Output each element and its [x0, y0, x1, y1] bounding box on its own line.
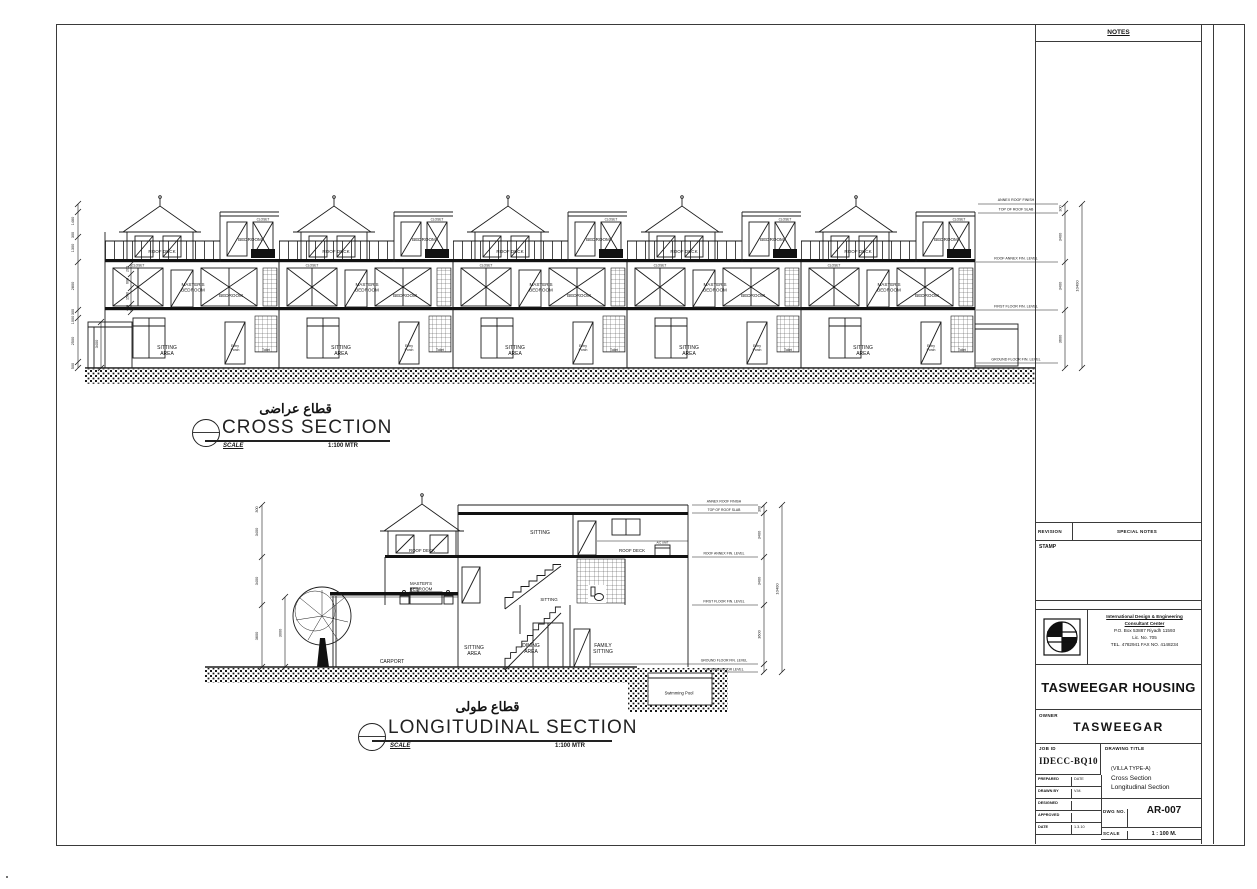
- longitudinal-section-marker-line: [358, 736, 385, 737]
- dim-label: 3600: [255, 632, 259, 640]
- room-label: ROOF DECK: [322, 249, 350, 254]
- approval-label: APPROVED: [1038, 813, 1059, 817]
- room-label: BEDROOM: [355, 288, 379, 293]
- approval-table: PREPARED DATE DRAWN BY V.M. DESIGNED APP…: [1036, 775, 1102, 835]
- dim-label: 450: [126, 305, 130, 311]
- longitudinal-section-title-underline: [372, 740, 612, 742]
- room-label: SITTING: [530, 530, 550, 536]
- room-label: BEDROOM: [586, 237, 610, 242]
- room-label: Porch: [231, 348, 240, 352]
- company-address: P.O. Box 53887 Riyadh 11593: [1088, 628, 1201, 635]
- dim-label: 300: [255, 506, 259, 512]
- cross-section-scale-value: 1:100 MTR: [328, 443, 358, 449]
- longitudinal-section-shell: [205, 494, 758, 712]
- dim-label: 3400: [95, 340, 99, 348]
- room-label: MASTER'S: [181, 282, 204, 287]
- room-label: BEDROOM: [410, 586, 433, 591]
- job-id-value: IDECC-BQ10: [1036, 756, 1101, 766]
- revision-label: REVISION: [1038, 529, 1062, 534]
- spacer-cell: [1036, 601, 1201, 610]
- approval-value: V.M.: [1071, 789, 1102, 799]
- room-label: Toilet: [610, 348, 618, 352]
- room-label: BEDROOM: [219, 293, 243, 298]
- room-label: MASTER'S: [877, 282, 900, 287]
- room-label: CLOSET: [306, 264, 319, 268]
- drawing-title-line1: (VILLA TYPE-A): [1111, 766, 1151, 772]
- revision-cell: REVISION: [1036, 523, 1073, 541]
- notes-header: NOTES: [1036, 24, 1201, 42]
- level-label: ANNEX ROOF FINISH: [707, 500, 742, 504]
- approval-label: DESIGNED: [1038, 801, 1058, 805]
- room-label: Toilet: [436, 348, 444, 352]
- level-label: TOP OF ROOF SLAB: [708, 508, 742, 512]
- dim-label: 300: [758, 506, 762, 512]
- approval-row: PREPARED DATE: [1036, 775, 1101, 787]
- scale-value: 1 : 100 M.: [1127, 831, 1201, 837]
- page-artifact-dot: [6, 876, 8, 878]
- room-label: AREA: [524, 649, 538, 655]
- room-label: ROOF DECK: [148, 249, 176, 254]
- approval-label: DATE: [1038, 825, 1048, 829]
- room-label: BEDROOM: [703, 288, 727, 293]
- dwg-no-label: DWG NO.: [1103, 809, 1128, 828]
- dim-label: 600: [126, 278, 130, 284]
- cross-section-title-underline: [205, 440, 390, 442]
- drawing-title-cell: DRAWING TITLE (VILLA TYPE-A) Cross Secti…: [1101, 744, 1201, 799]
- room-label: AREA: [467, 651, 481, 657]
- dim-label: 3600: [758, 630, 762, 638]
- longitudinal-section-marker-circle: [358, 723, 386, 751]
- longitudinal-section-scale-label: SCALE: [390, 743, 410, 749]
- company-name-line1: International Design & Engineering: [1088, 614, 1201, 621]
- longitudinal-section-drawing: ROOF DECKSITTINGROOF DECKA/C UNITMASTER'…: [250, 480, 810, 720]
- level-label: FIRST FLOOR FIN. LEVEL: [994, 305, 1038, 309]
- dim-label: 2500: [71, 337, 75, 345]
- room-label: BEDROOM: [529, 288, 553, 293]
- dim-label: 1000: [71, 316, 75, 324]
- stamp-label: STAMP: [1039, 544, 1056, 550]
- drawing-title-line3: Longitudinal Section: [1111, 784, 1170, 791]
- dim-label: 200: [126, 266, 130, 272]
- drawing-title-line2: Cross Section: [1111, 775, 1151, 782]
- level-label: ROOF ANNEX FIN. LEVEL: [703, 552, 744, 556]
- approval-row: DESIGNED: [1036, 799, 1101, 811]
- notes-area: [1036, 42, 1201, 523]
- approval-row: DATE 1.3.10: [1036, 823, 1101, 835]
- room-label: CLOSET: [605, 218, 618, 222]
- level-label: ANNEX ROOF FINISH: [998, 198, 1035, 202]
- room-label: ROOF DECK: [496, 249, 524, 254]
- room-label: CLOSET: [480, 264, 493, 268]
- room-label: CLOSET: [953, 218, 966, 222]
- approval-row: APPROVED: [1036, 811, 1101, 823]
- approval-value: [1071, 813, 1102, 823]
- owner-label: OWNER: [1039, 713, 1058, 718]
- longitudinal-section-title-arabic: قطاع طولى: [440, 699, 535, 715]
- room-label: BEDROOM: [238, 237, 262, 242]
- notes-label: NOTES: [1107, 29, 1129, 36]
- room-label: CLOSET: [257, 218, 270, 222]
- room-label: Swimming Pool: [665, 691, 694, 696]
- company-logo-cell: [1036, 610, 1088, 665]
- dim-label: 3400: [758, 531, 762, 539]
- room-label: Porch: [927, 348, 936, 352]
- room-label: BEDROOM: [741, 293, 765, 298]
- room-label: Porch: [405, 348, 414, 352]
- dim-label: 3000: [279, 629, 283, 637]
- level-label: ROOF ANNEX FIN. LEVEL: [994, 257, 1038, 261]
- room-label: MASTER'S: [410, 581, 432, 586]
- special-notes-cell: SPECIAL NOTES: [1073, 523, 1201, 541]
- approval-row: DRAWN BY V.M.: [1036, 787, 1101, 799]
- dim-label: 300: [71, 309, 75, 315]
- longitudinal-section-scale-value: 1:100 MTR: [555, 743, 585, 749]
- room-label: ROOF DECK: [670, 249, 698, 254]
- room-label: MASTER'S: [355, 282, 378, 287]
- job-id-label: JOB ID: [1039, 746, 1056, 751]
- sheet-inner-margin-line: [1213, 24, 1214, 844]
- dim-label: 500: [71, 363, 75, 369]
- company-logo-icon: [1042, 615, 1082, 659]
- owner-name: TASWEEGAR: [1073, 720, 1164, 734]
- dwg-no-cell: DWG NO. AR-007: [1101, 799, 1201, 828]
- room-label: BEDROOM: [915, 293, 939, 298]
- scale-label: SCALE: [1103, 831, 1128, 840]
- room-label: MASTER'S: [529, 282, 552, 287]
- dim-label: 1300: [71, 244, 75, 252]
- room-label: ROOF DECK: [844, 249, 872, 254]
- room-label: BEDROOM: [760, 237, 784, 242]
- level-label: TOP OF ROOF SLAB: [999, 208, 1034, 212]
- room-label: BEDROOM: [877, 288, 901, 293]
- room-label: BEDROOM: [934, 237, 958, 242]
- cross-section-title: CROSS SECTION: [222, 417, 392, 439]
- cross-section-scale-label: SCALE: [223, 443, 243, 449]
- dim-label: 1460: [71, 217, 75, 225]
- cross-section-title-arabic: قطاع عراضى: [248, 401, 343, 417]
- dim-total-label: 10400: [775, 583, 780, 595]
- room-label: Toilet: [784, 348, 792, 352]
- room-label: AREA: [160, 351, 174, 357]
- job-id-cell: JOB ID IDECC-BQ10: [1036, 744, 1101, 775]
- approval-value: [1071, 801, 1102, 811]
- room-label: CLOSET: [132, 264, 145, 268]
- cross-section-marker-line: [192, 432, 219, 433]
- company-phone: TEL. 4782941 FAX NO. 4148234: [1088, 642, 1201, 649]
- dim-label: 1500: [126, 292, 130, 300]
- owner-cell: OWNER TASWEEGAR: [1036, 710, 1201, 744]
- dwg-no-value: AR-007: [1127, 805, 1201, 816]
- project-title: TASWEEGAR HOUSING: [1041, 680, 1196, 695]
- room-label: BEDROOM: [412, 237, 436, 242]
- cross-section-marker-circle: [192, 419, 220, 447]
- room-label: AREA: [682, 351, 696, 357]
- company-name-line2: Consultant Center: [1088, 621, 1201, 628]
- room-label: AREA: [334, 351, 348, 357]
- room-label: BEDROOM: [181, 288, 205, 293]
- approval-label: PREPARED: [1038, 777, 1059, 781]
- room-label: A/C UNIT: [657, 541, 669, 545]
- title-block: NOTES REVISION SPECIAL NOTES STAMP Inte: [1035, 24, 1202, 844]
- special-notes-label: SPECIAL NOTES: [1117, 529, 1157, 534]
- room-label: SITTING: [540, 597, 558, 602]
- room-label: AREA: [856, 351, 870, 357]
- stamp-cell: STAMP: [1036, 541, 1201, 601]
- cross-section-drawing: ROOF DECKCLOSETBEDROOMCLOSETMASTER'SBEDR…: [60, 192, 1100, 392]
- project-title-cell: TASWEEGAR HOUSING: [1036, 665, 1201, 710]
- room-label: CLOSET: [654, 264, 667, 268]
- level-label: GROUND FLOOR FIN. LEVEL: [991, 358, 1040, 362]
- room-label: CARPORT: [380, 659, 404, 665]
- level-label: GROUND FLOOR LEVEL: [704, 668, 743, 672]
- room-label: Porch: [753, 348, 762, 352]
- room-label: ROOF DECK: [409, 548, 435, 553]
- scale-cell: SCALE 1 : 100 M.: [1101, 828, 1201, 840]
- room-label: ROOF DECK: [619, 548, 645, 553]
- level-label: FIRST FLOOR FIN. LEVEL: [703, 600, 744, 604]
- approval-label: DRAWN BY: [1038, 789, 1059, 793]
- drawing-title-label: DRAWING TITLE: [1105, 746, 1144, 751]
- approval-value: 1.3.10: [1071, 825, 1102, 835]
- room-label: Toilet: [958, 348, 966, 352]
- room-label: CLOSET: [431, 218, 444, 222]
- company-license: Lic. No. 705: [1088, 635, 1201, 642]
- room-label: BEDROOM: [567, 293, 591, 298]
- room-label: MASTER'S: [703, 282, 726, 287]
- room-label: CLOSET: [779, 218, 792, 222]
- room-label: AREA: [508, 351, 522, 357]
- dim-label: 300: [71, 232, 75, 238]
- level-label: GROUND FLOOR FIN. LEVEL: [701, 659, 748, 663]
- room-label: Porch: [579, 348, 588, 352]
- room-label: Toilet: [262, 348, 270, 352]
- room-label: BEDROOM: [393, 293, 417, 298]
- room-label: SITTING: [593, 649, 613, 655]
- dim-label: 3400: [758, 577, 762, 585]
- dim-label: 2800: [71, 282, 75, 290]
- dim-label: 3400: [255, 528, 259, 536]
- longitudinal-section-title: LONGITUDINAL SECTION: [388, 717, 637, 739]
- drawing-sheet: ROOF DECKCLOSETBEDROOMCLOSETMASTER'SBEDR…: [0, 0, 1257, 889]
- approval-value: DATE: [1071, 777, 1102, 787]
- dim-label: 3400: [255, 577, 259, 585]
- company-info-cell: International Design & Engineering Consu…: [1088, 610, 1201, 665]
- room-label: CLOSET: [828, 264, 841, 268]
